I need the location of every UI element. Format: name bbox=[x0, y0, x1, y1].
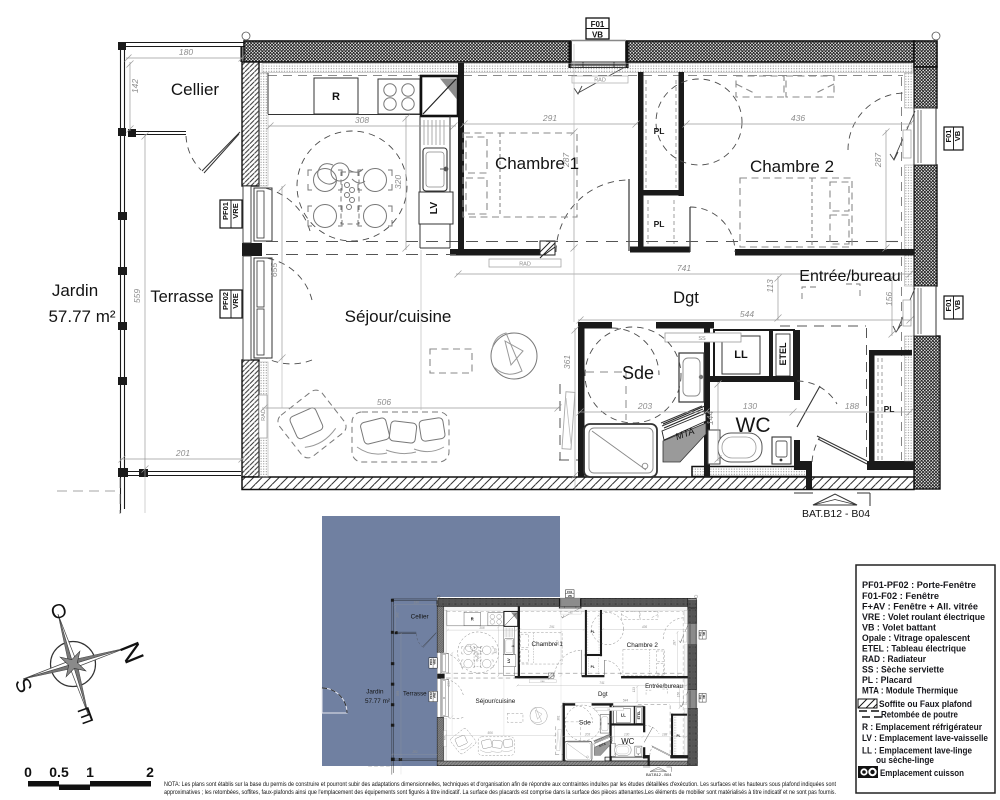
svg-text:436: 436 bbox=[791, 113, 805, 123]
svg-text:57.77 m²: 57.77 m² bbox=[48, 307, 115, 326]
svg-text:188: 188 bbox=[845, 401, 859, 411]
svg-text:142: 142 bbox=[130, 79, 140, 93]
svg-text:1: 1 bbox=[86, 764, 94, 780]
svg-text:180: 180 bbox=[179, 47, 193, 57]
svg-text:Jardin: Jardin bbox=[52, 281, 98, 300]
svg-text:RAD: RAD bbox=[261, 409, 267, 421]
svg-text:Entrée/bureau: Entrée/bureau bbox=[799, 268, 900, 285]
svg-text:RAD: RAD bbox=[519, 262, 531, 268]
svg-text:Sde: Sde bbox=[622, 363, 654, 383]
svg-text:Retombée de poutre: Retombée de poutre bbox=[881, 710, 958, 721]
svg-text:NOTA: Les plans sont établis s: NOTA: Les plans sont établis sur la base… bbox=[164, 781, 836, 788]
svg-text:PF01-PF02 : Porte-Fenêtre: PF01-PF02 : Porte-Fenêtre bbox=[862, 580, 976, 591]
svg-text:0: 0 bbox=[24, 764, 32, 780]
svg-text:PL: PL bbox=[654, 219, 665, 229]
svg-text:LL: LL bbox=[734, 349, 748, 361]
svg-text:Cellier: Cellier bbox=[171, 80, 220, 99]
svg-text:RAD : Radiateur: RAD : Radiateur bbox=[862, 654, 926, 665]
svg-text:PL: PL bbox=[884, 404, 895, 414]
svg-text:PF01: PF01 bbox=[221, 202, 230, 220]
svg-text:F01: F01 bbox=[944, 130, 953, 143]
svg-text:VRE: VRE bbox=[231, 293, 240, 308]
svg-text:156: 156 bbox=[884, 292, 894, 306]
svg-text:559: 559 bbox=[132, 289, 142, 303]
svg-text:SS: SS bbox=[698, 336, 706, 342]
svg-text:287: 287 bbox=[873, 153, 883, 168]
svg-text:201: 201 bbox=[175, 448, 190, 458]
svg-text:291: 291 bbox=[542, 113, 557, 123]
svg-text:113: 113 bbox=[765, 279, 775, 293]
svg-text:approximatives ; les retombées: approximatives ; les retombées, soffites… bbox=[164, 789, 836, 796]
svg-text:F01: F01 bbox=[944, 299, 953, 312]
svg-text:R : Emplacement réfrigérateur: R : Emplacement réfrigérateur bbox=[862, 722, 982, 733]
svg-text:BAT.B12 - B04: BAT.B12 - B04 bbox=[802, 508, 870, 520]
svg-text:ou sèche-linge: ou sèche-linge bbox=[876, 755, 934, 766]
svg-text:144: 144 bbox=[705, 411, 715, 425]
svg-text:ETEL : Tableau électrique: ETEL : Tableau électrique bbox=[862, 644, 966, 655]
svg-text:MTA : Module Thermique: MTA : Module Thermique bbox=[862, 686, 958, 697]
svg-text:203: 203 bbox=[637, 401, 652, 411]
svg-text:LV: LV bbox=[428, 202, 440, 215]
svg-text:361: 361 bbox=[562, 355, 572, 369]
svg-text:PL: PL bbox=[654, 126, 665, 136]
svg-text:LV : Emplacement lave-vaissell: LV : Emplacement lave-vaisselle bbox=[862, 733, 988, 744]
svg-text:320: 320 bbox=[393, 175, 403, 189]
svg-text:F01-F02 : Fenêtre: F01-F02 : Fenêtre bbox=[862, 591, 939, 602]
svg-text:Terrasse: Terrasse bbox=[150, 288, 213, 306]
svg-text:Chambre 2: Chambre 2 bbox=[750, 157, 834, 176]
svg-text:Emplacement cuisson: Emplacement cuisson bbox=[880, 768, 964, 779]
svg-text:Soffite ou Faux plafond: Soffite ou Faux plafond bbox=[879, 699, 972, 710]
svg-text:VRE : Volet roulant électrique: VRE : Volet roulant électrique bbox=[862, 612, 985, 623]
svg-text:0.5: 0.5 bbox=[49, 764, 69, 780]
svg-text:Séjour/cuisine: Séjour/cuisine bbox=[345, 307, 452, 326]
svg-text:PL : Placard: PL : Placard bbox=[862, 675, 912, 686]
svg-text:WC: WC bbox=[736, 414, 771, 437]
svg-text:F+AV : Fenêtre + All. vitrée: F+AV : Fenêtre + All. vitrée bbox=[862, 602, 978, 613]
svg-text:Opale : Vitrage opalescent: Opale : Vitrage opalescent bbox=[862, 633, 971, 644]
svg-text:VB: VB bbox=[953, 130, 962, 141]
svg-text:SS : Sèche serviette: SS : Sèche serviette bbox=[862, 665, 944, 676]
svg-text:F01: F01 bbox=[591, 20, 605, 29]
svg-text:Dgt: Dgt bbox=[673, 289, 699, 307]
svg-text:R: R bbox=[332, 91, 340, 103]
svg-text:RAD: RAD bbox=[594, 78, 606, 84]
svg-text:544: 544 bbox=[740, 309, 754, 319]
svg-text:655: 655 bbox=[269, 263, 279, 277]
svg-text:VRE: VRE bbox=[231, 203, 240, 218]
svg-text:PF02: PF02 bbox=[221, 292, 230, 310]
svg-text:VB : Volet battant: VB : Volet battant bbox=[862, 623, 937, 634]
svg-text:ETEL: ETEL bbox=[778, 342, 788, 366]
svg-text:VB: VB bbox=[953, 299, 962, 310]
svg-text:741: 741 bbox=[677, 263, 691, 273]
svg-text:308: 308 bbox=[355, 115, 369, 125]
svg-text:2: 2 bbox=[146, 764, 154, 780]
svg-text:Chambre 1: Chambre 1 bbox=[495, 154, 579, 173]
svg-text:506: 506 bbox=[377, 397, 391, 407]
svg-text:130: 130 bbox=[743, 401, 757, 411]
svg-text:VB: VB bbox=[592, 31, 603, 40]
